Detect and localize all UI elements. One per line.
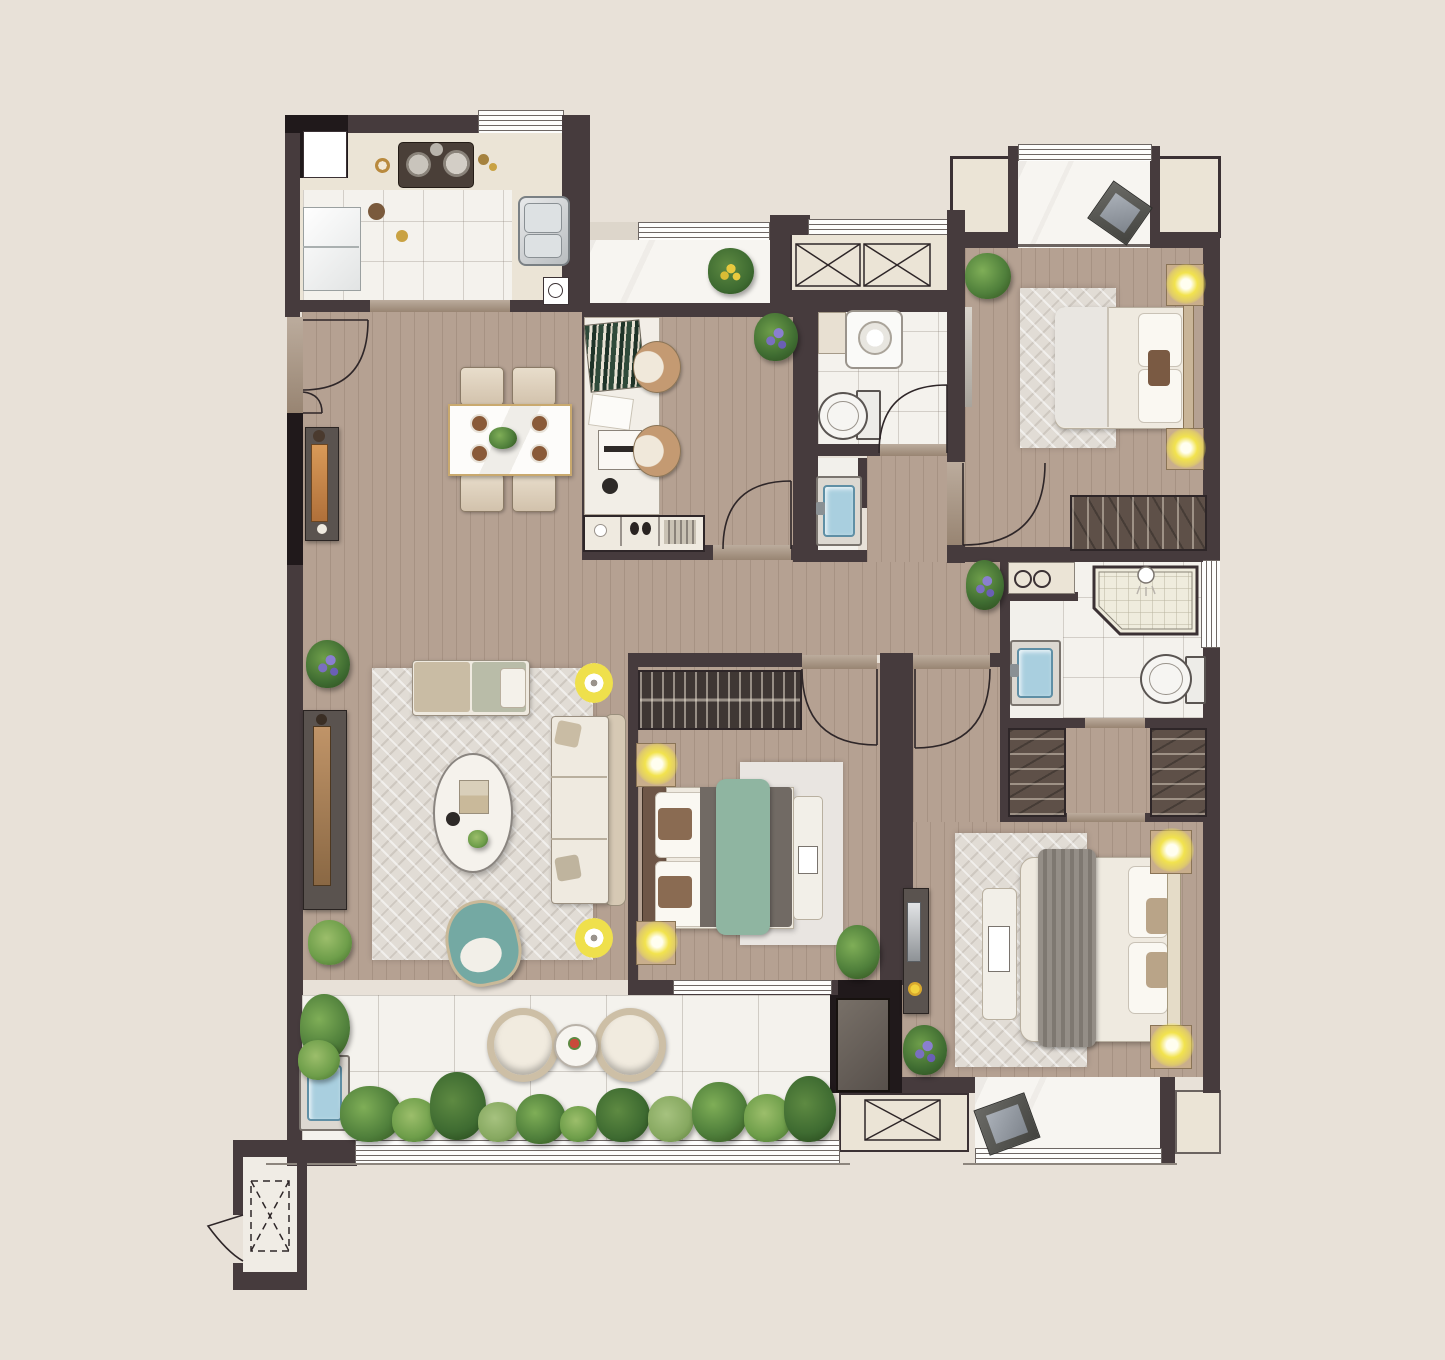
entry-threshold (287, 317, 303, 413)
bed-runner-gray (1038, 849, 1096, 1047)
ac-platform-top (790, 233, 951, 296)
wall (348, 115, 478, 133)
wall (1008, 146, 1018, 248)
master-corridor-floor (913, 663, 1000, 823)
floor-lamp-icon (575, 918, 613, 958)
sideboard-deco-icon (313, 430, 325, 442)
place-setting-icon (470, 444, 489, 463)
daybed-cushion (414, 662, 470, 712)
table-deco-icon (568, 1037, 581, 1050)
wall (790, 215, 810, 235)
bath-shelf (818, 312, 846, 354)
bench-tray-icon (798, 846, 818, 874)
cabinet-towels (664, 520, 696, 544)
stove-burner-icon (406, 152, 431, 177)
cabinet-dot-icon (630, 522, 639, 535)
bedroom-middle-window (673, 980, 832, 994)
bathroom1-door-threshold (880, 444, 947, 456)
kitchen-deco-icon (375, 158, 390, 173)
headboard (1183, 305, 1194, 431)
wall (287, 565, 303, 995)
study-chair (633, 425, 681, 477)
table-centerpiece-plant-icon (489, 427, 517, 449)
sofa-cushion-line (551, 776, 607, 778)
balcony-chair (594, 1008, 666, 1082)
washbasin (823, 485, 855, 537)
place-setting-icon (530, 444, 549, 463)
sideboard-cup-icon (317, 524, 327, 534)
tv-console-deco (313, 726, 331, 886)
plant-icon (596, 1088, 650, 1142)
shower-window (1201, 560, 1220, 648)
accent-cushion (1148, 350, 1170, 386)
sink-basin (524, 203, 562, 233)
plant-icon (560, 1106, 598, 1142)
bed-runner-green (716, 779, 770, 935)
wall (1150, 146, 1160, 248)
wall (285, 133, 300, 317)
elevator-door-flap (208, 1215, 243, 1261)
faucet-icon (1010, 664, 1019, 677)
desk-papers (588, 393, 634, 431)
headboard (1167, 855, 1181, 1044)
coffee-table-tray-icon (446, 812, 460, 826)
plant-icon (784, 1076, 836, 1142)
cabinet-cup-icon (594, 524, 607, 537)
master-door-threshold (913, 655, 990, 669)
stove-burner-icon (443, 150, 470, 177)
wall (628, 653, 802, 667)
plant-icon (692, 1082, 748, 1142)
kitchen-deco-icon (478, 154, 489, 165)
cabinet-divider (658, 517, 660, 546)
closet-threshold (1067, 813, 1145, 822)
mirror-strip (965, 307, 972, 407)
wall (770, 215, 790, 312)
wall (287, 413, 303, 565)
place-setting-icon (530, 414, 549, 433)
closet-floor (1062, 728, 1152, 813)
plant-icon (306, 640, 350, 688)
plant-icon (966, 560, 1004, 610)
plant-icon (478, 1102, 520, 1142)
utility-cabinet (836, 998, 890, 1092)
laptop-screen-line (604, 446, 634, 452)
kitchen-deco-icon (396, 230, 408, 242)
sideboard-deco (311, 444, 328, 522)
closet-wardrobe (1008, 728, 1066, 817)
elevator-wall (233, 1272, 307, 1290)
counter-circle-icon (1014, 570, 1032, 588)
toilet-bowl (818, 392, 868, 440)
master-toilet-bowl (1140, 654, 1192, 704)
wall (285, 300, 370, 312)
bay-window-seat (1175, 1090, 1221, 1154)
accent-pillow (658, 876, 692, 908)
dining-chair (512, 473, 556, 512)
stove-burner-icon (430, 143, 443, 156)
bedroom-right-balcony-window (1018, 144, 1152, 161)
sofa-pillow (554, 720, 582, 748)
plant-icon (430, 1072, 486, 1140)
cabinet-divider (620, 517, 622, 546)
lamp-glow-icon (636, 743, 678, 785)
step-contour (266, 1163, 850, 1165)
corridor-bath-floor (867, 452, 947, 562)
ac-louver-window (808, 219, 949, 235)
wall (902, 1077, 975, 1093)
console-flower-icon (908, 982, 922, 996)
plant-icon (298, 1040, 340, 1080)
bookshelf (638, 670, 802, 730)
wall (791, 545, 800, 560)
elevator-floor (243, 1157, 297, 1272)
plant-icon (903, 1025, 947, 1075)
sink-basin (524, 234, 562, 258)
kitchen-threshold (370, 300, 510, 312)
dining-chair (460, 367, 504, 406)
kitchen-deco-icon (368, 203, 385, 220)
faucet-icon (816, 502, 825, 515)
study-door-threshold (713, 545, 791, 560)
wall (812, 550, 867, 562)
sofa-cushion-line (551, 838, 607, 840)
hallway-floor (582, 560, 1010, 655)
elevator-wall (233, 1157, 243, 1215)
coffee-table-books (459, 780, 489, 814)
kitchen-window (478, 110, 564, 133)
wall (1160, 1077, 1175, 1163)
floor-lamp-icon (575, 663, 613, 703)
plant-icon (308, 920, 352, 965)
balcony-chair (487, 1008, 559, 1082)
lamp-glow-icon (1150, 828, 1194, 872)
washer-drum-icon (858, 321, 892, 355)
lamp-glow-icon (1166, 264, 1206, 304)
plant-icon (965, 253, 1011, 299)
bedroom-middle-door-threshold (802, 655, 877, 669)
place-setting-icon (470, 414, 489, 433)
fridge-divider (303, 246, 359, 248)
plant-icon (754, 313, 798, 361)
ac-box-right (1155, 156, 1221, 238)
balcony-bottom-sill-window (355, 1140, 840, 1163)
console-deco (907, 902, 921, 962)
wall (947, 210, 965, 462)
sofa-pillow (554, 854, 582, 882)
wall (818, 444, 880, 456)
console-deco-icon (316, 714, 327, 725)
dining-chair (460, 473, 504, 512)
bedroom-right-door-threshold (947, 462, 965, 545)
kitchen-deco-icon (489, 163, 497, 171)
drain-circle-icon (548, 283, 563, 298)
cabinet-dot-icon (642, 522, 651, 535)
dining-chair (512, 367, 556, 406)
masterbath-threshold (1085, 718, 1145, 728)
coffee-table-plant-icon (468, 830, 488, 848)
lamp-glow-icon (1166, 428, 1206, 468)
wardrobe (1070, 495, 1207, 551)
daybed-pillow (500, 668, 526, 708)
floor-plan (0, 0, 1445, 1360)
bench-tray-icon (988, 926, 1010, 972)
accent-pillow (658, 808, 692, 840)
shaft-box (303, 131, 347, 178)
wall-top (590, 222, 638, 240)
balcony-slider-line (1018, 244, 1150, 247)
desk-lamp-icon (602, 478, 618, 494)
lamp-glow-icon (1150, 1023, 1194, 1067)
plant-icon (516, 1094, 566, 1144)
fridge (303, 207, 361, 291)
step-contour (963, 1163, 1177, 1165)
plant-icon (836, 925, 880, 979)
balcony-top-window (638, 222, 770, 240)
closet-wardrobe (1150, 728, 1207, 817)
elevator-wall (233, 1140, 307, 1157)
elevator-wall (297, 1150, 307, 1277)
master-washbasin (1017, 648, 1053, 698)
bed-blanket (1055, 307, 1109, 427)
ac-platform-bottom (839, 1093, 969, 1152)
balcony-plant-icon (708, 248, 754, 294)
study-chair (633, 341, 681, 393)
lamp-glow-icon (636, 921, 678, 963)
plant-icon (648, 1096, 694, 1142)
counter-circle-icon (1033, 570, 1051, 588)
